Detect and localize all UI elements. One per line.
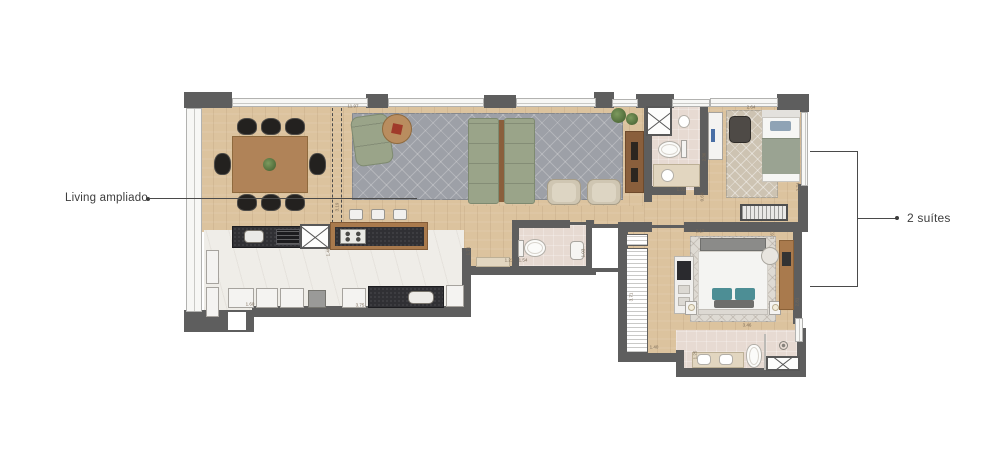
foot-bench xyxy=(700,238,766,251)
tv xyxy=(677,261,691,280)
dimension-label: 1.48 xyxy=(326,248,331,257)
plant xyxy=(626,113,638,125)
cooktop xyxy=(340,229,366,244)
small-sink xyxy=(678,115,690,128)
dining-chair xyxy=(285,118,305,135)
dimension-label: 1.31 xyxy=(677,187,686,192)
bar-stool xyxy=(349,209,363,220)
shower-head-icon xyxy=(779,341,788,350)
window xyxy=(388,98,484,107)
dimension-label: 1.03 xyxy=(581,249,586,258)
dining-chair xyxy=(214,153,231,175)
dimension-label: 3.71 xyxy=(629,293,634,302)
lounge-chair xyxy=(547,179,581,205)
island-sink xyxy=(244,230,264,243)
cabinet xyxy=(446,285,464,307)
tall-cabinet xyxy=(206,250,219,284)
dimension-label: 0.60 xyxy=(700,193,705,202)
wall xyxy=(468,266,596,275)
console-decor xyxy=(631,142,638,160)
window xyxy=(672,99,710,107)
dimension-label: 2.36 xyxy=(702,153,707,162)
dining-chair xyxy=(261,194,281,211)
window xyxy=(186,108,202,312)
window xyxy=(710,98,778,107)
refrigerator xyxy=(300,224,330,249)
dimension-label: 2.81 xyxy=(795,298,800,307)
lamp xyxy=(772,304,779,311)
toilet xyxy=(746,344,762,368)
shower-box xyxy=(646,106,672,136)
leader-line xyxy=(150,198,417,199)
bed-headboard xyxy=(698,309,768,315)
dimension-label: 1.61 xyxy=(770,231,775,240)
wall xyxy=(618,232,626,362)
bed-pillow-teal xyxy=(712,288,732,300)
shower-bench xyxy=(766,356,800,371)
suites-label: 2 suítes xyxy=(907,211,951,225)
wall xyxy=(594,92,614,108)
appliance xyxy=(256,288,278,308)
wall xyxy=(618,353,684,362)
wall xyxy=(484,95,516,108)
dashed-wall-line xyxy=(332,108,333,228)
bed-headboard xyxy=(762,110,800,118)
bracket-line xyxy=(810,151,858,152)
leader-dot xyxy=(895,216,899,220)
bench-rack xyxy=(740,204,788,221)
dishwasher xyxy=(280,288,304,308)
bar-stool xyxy=(371,209,385,220)
dimension-label: 2.64 xyxy=(747,105,756,110)
dimension-label: 3.46 xyxy=(743,323,752,328)
dimension-label: 1.54 xyxy=(519,258,528,263)
living-label: Living ampliado xyxy=(65,192,148,204)
dimension-label: 1.25 xyxy=(693,351,698,360)
wall xyxy=(700,106,708,192)
armchair-dark xyxy=(729,116,751,143)
dining-chair xyxy=(309,153,326,175)
bar-stool xyxy=(393,209,407,220)
bed-pillow-teal xyxy=(735,288,755,300)
bed-pillow xyxy=(770,121,791,131)
door-lintel xyxy=(652,225,684,228)
desk xyxy=(779,240,794,310)
dimension-label: 3.17 xyxy=(696,229,705,234)
window xyxy=(795,318,803,342)
toilet xyxy=(524,239,546,257)
dining-chair xyxy=(237,194,257,211)
dresser-drawer xyxy=(678,285,690,294)
wall xyxy=(793,228,802,324)
dimension-label: 3.19 xyxy=(335,203,340,212)
table-plant xyxy=(263,158,276,171)
dining-chair xyxy=(237,118,257,135)
wall xyxy=(184,92,232,108)
entry-notch xyxy=(228,312,246,330)
closet xyxy=(626,234,648,246)
vanity-sink xyxy=(719,354,733,365)
oven xyxy=(308,290,326,308)
desk-item xyxy=(711,129,715,142)
lounge-chair xyxy=(587,179,621,205)
wall xyxy=(512,220,570,228)
dimension-label: 1.40 xyxy=(650,345,659,350)
dimension-label: 11.97 xyxy=(348,104,359,109)
dining-chair xyxy=(261,118,281,135)
bed-blanket xyxy=(762,138,800,174)
floor-plan: Living ampliado 2 suítes 11.973.191.481.… xyxy=(0,0,1000,476)
vanity-sink xyxy=(697,354,711,365)
lamp xyxy=(688,304,695,311)
tall-cabinet xyxy=(206,287,219,317)
plant xyxy=(611,108,626,123)
window xyxy=(516,98,596,107)
dining-chair xyxy=(285,194,305,211)
kitchen-sink xyxy=(408,291,434,304)
bracket-line xyxy=(857,218,897,219)
vanity-sink xyxy=(661,169,674,182)
wall xyxy=(618,222,652,232)
bracket-line xyxy=(810,286,858,287)
dimension-label: 3.75 xyxy=(356,303,365,308)
wall xyxy=(366,94,388,108)
sofa xyxy=(468,118,499,204)
grill xyxy=(276,229,300,245)
dimension-label: 1.21 xyxy=(505,258,514,263)
console-sideboard xyxy=(625,131,644,193)
sofa xyxy=(504,118,535,204)
toilet-tank xyxy=(681,140,687,158)
console-decor xyxy=(631,168,638,182)
dimension-label: 1.71 xyxy=(466,247,471,256)
dimension-label: 2.74 xyxy=(796,183,801,192)
coffee-table-tray xyxy=(391,123,403,135)
laptop xyxy=(782,252,791,266)
desk-chair xyxy=(761,247,779,265)
bed-pillow-gray xyxy=(714,300,754,308)
window xyxy=(801,112,808,186)
toilet xyxy=(658,141,681,158)
dashed-wall-line xyxy=(341,108,342,228)
dimension-label: 1.60 xyxy=(246,302,255,307)
window xyxy=(612,99,638,107)
